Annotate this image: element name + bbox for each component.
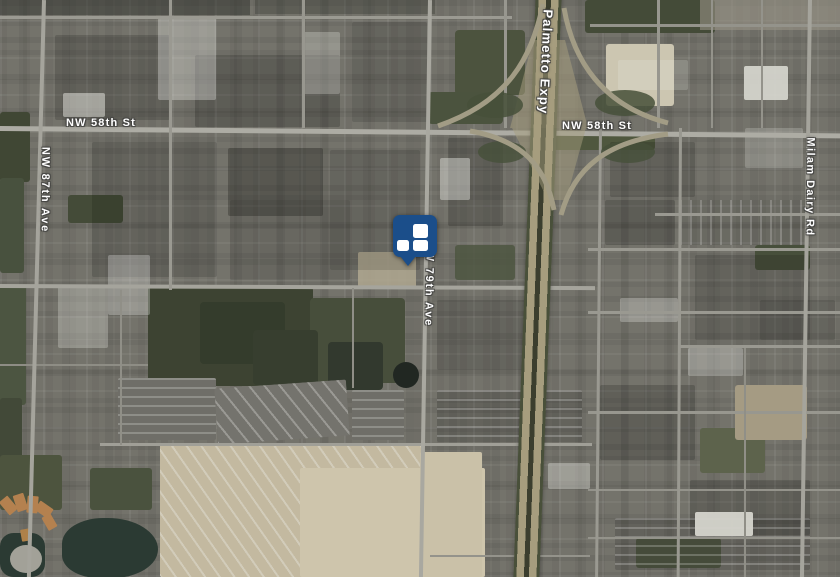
road-segment <box>588 248 840 251</box>
marker-body <box>393 215 437 257</box>
road-segment <box>711 0 713 128</box>
marker-tail <box>400 256 416 266</box>
road-segment <box>657 0 660 128</box>
marker-tile-icon <box>413 224 428 238</box>
roads-layer <box>0 0 840 577</box>
road-label-nw-58th-st-east: NW 58th St <box>562 120 632 132</box>
road-segment <box>120 290 122 445</box>
property-location-marker[interactable] <box>393 215 437 267</box>
road-segment <box>0 284 595 290</box>
road-segment <box>352 288 354 388</box>
road-segment <box>588 311 840 314</box>
road-segment <box>169 0 172 290</box>
road-segment <box>0 16 512 19</box>
road-label-nw-87th-ave: NW 87th Ave <box>39 147 52 233</box>
marker-tile-icon <box>413 240 428 251</box>
road-segment <box>430 555 590 557</box>
road-segment <box>302 0 305 128</box>
road-segment <box>0 364 148 366</box>
road-segment <box>677 128 682 577</box>
road-segment <box>678 345 840 348</box>
marker-tile-icon <box>397 240 409 251</box>
road-segment <box>761 0 763 128</box>
road-label-nw-58th-st-west: NW 58th St <box>66 117 136 129</box>
satellite-map[interactable]: Palmetto Expy NW 58th St NW 58th St NW 8… <box>0 0 840 577</box>
road-segment <box>27 0 46 577</box>
road-segment <box>590 24 840 27</box>
road-segment <box>595 128 602 577</box>
road-segment <box>504 0 507 128</box>
road-label-milam-dairy-rd: Milam Dairy Rd <box>804 137 817 236</box>
road-segment <box>744 348 746 577</box>
